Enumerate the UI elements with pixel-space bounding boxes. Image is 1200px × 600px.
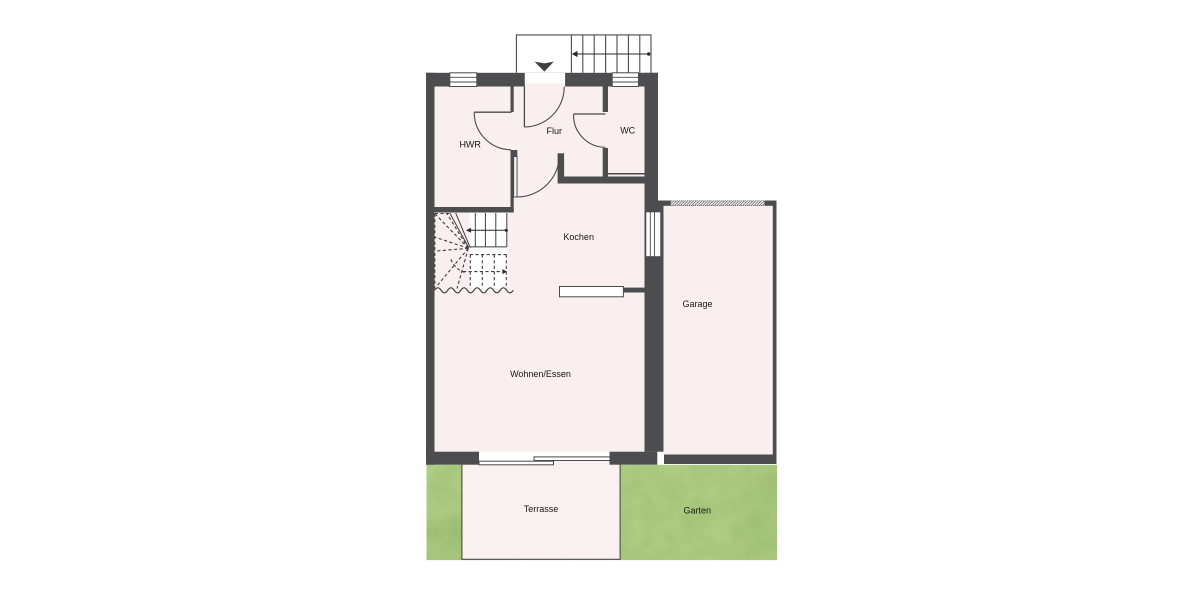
svg-text:WC: WC <box>620 126 635 136</box>
svg-text:HWR: HWR <box>459 140 481 150</box>
svg-text:Wohnen/Essen: Wohnen/Essen <box>510 369 571 379</box>
svg-text:Garage: Garage <box>682 299 712 309</box>
svg-text:Flur: Flur <box>547 126 563 136</box>
svg-text:Terrasse: Terrasse <box>524 504 559 514</box>
svg-text:Kochen: Kochen <box>563 232 594 242</box>
svg-text:Garten: Garten <box>684 506 712 516</box>
